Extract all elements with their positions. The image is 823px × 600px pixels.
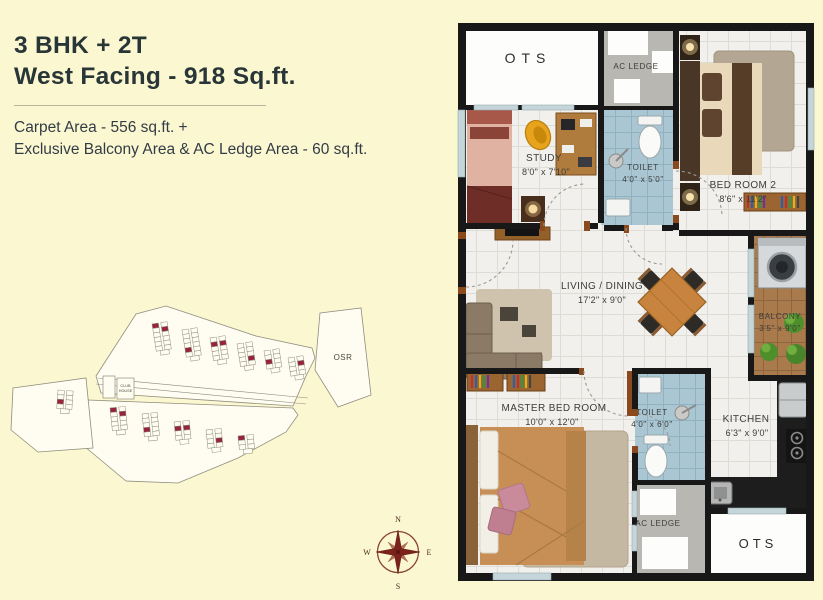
room-label-ots-top: OTS — [505, 50, 552, 66]
room-dims-toilet-bottom: 4'0" x 6'0" — [631, 420, 673, 429]
site-plan-sketch: CLUB HOUSE OSR — [6, 298, 408, 508]
compass-hub — [396, 550, 400, 554]
room-label-study: STUDY — [526, 153, 562, 164]
osr-label: OSR — [334, 353, 353, 362]
room-label-ac-ledge-bottom: AC LEDGE — [635, 519, 680, 528]
room-dims-master: 10'0" x 12'0" — [525, 417, 578, 427]
room-dims-study: 8'0" x 7'10" — [522, 167, 570, 177]
ac-ledge-bottom-notch — [640, 489, 676, 515]
divider — [14, 105, 266, 106]
room-dims-balcony: 3'5" x 9'0" — [759, 324, 801, 333]
compass-s: S — [396, 582, 400, 591]
area-info: Carpet Area - 556 sq.ft. + Exclusive Bal… — [14, 117, 367, 161]
brochure-page: 3 BHK + 2T West Facing - 918 Sq.ft. Carp… — [0, 0, 823, 600]
room-label-toilet-top: TOILET — [627, 163, 658, 172]
site-parcel-left — [11, 378, 93, 452]
room-label-bedroom2: BED ROOM 2 — [710, 180, 777, 191]
dining-set — [638, 268, 707, 337]
room-label-master: MASTER BED ROOM — [502, 403, 607, 414]
ac-ledge-top-notch3 — [614, 79, 640, 103]
compass-rose: N E S W — [360, 508, 436, 592]
club-house-label-2: HOUSE — [119, 389, 133, 393]
room-label-ac-ledge-top: AC LEDGE — [613, 62, 658, 71]
room-label-living: LIVING / DINING — [561, 281, 643, 292]
ac-ledge-bottom-notch2 — [642, 537, 688, 569]
room-dims-kitchen: 6'3" x 9'0" — [726, 428, 769, 438]
club-house-annex — [103, 376, 115, 398]
room-label-balcony: BALCONY — [759, 312, 801, 321]
compass-e: E — [427, 548, 432, 557]
plan-header: 3 BHK + 2T West Facing - 918 Sq.ft. Carp… — [14, 30, 367, 161]
room-dims-bedroom2: 8'6" x 11'2" — [719, 194, 766, 204]
compass-w: W — [363, 548, 371, 557]
title-line-1: 3 BHK + 2T — [14, 30, 367, 61]
ots-top-area — [464, 29, 598, 105]
compass-n: N — [395, 515, 401, 524]
room-label-toilet-bottom: TOILET — [636, 408, 667, 417]
floor-plan: OTS AC LEDGE STUDY 8'0" x 7'10" TOILET 4… — [456, 21, 816, 583]
club-house-label-1: CLUB — [120, 384, 131, 388]
balcony-area-line: Exclusive Balcony Area & AC Ledge Area -… — [14, 139, 367, 161]
carpet-area-line: Carpet Area - 556 sq.ft. + — [14, 117, 367, 139]
ac-ledge-top-notch — [608, 29, 648, 55]
title-line-2: West Facing - 918 Sq.ft. — [14, 61, 367, 92]
page-title: 3 BHK + 2T West Facing - 918 Sq.ft. — [14, 30, 367, 92]
room-label-ots-bottom: OTS — [739, 536, 778, 551]
room-dims-toilet-top: 4'0" x 5'0" — [622, 175, 664, 184]
room-dims-living: 17'2" x 9'0" — [578, 295, 626, 305]
room-label-kitchen: KITCHEN — [723, 414, 770, 425]
